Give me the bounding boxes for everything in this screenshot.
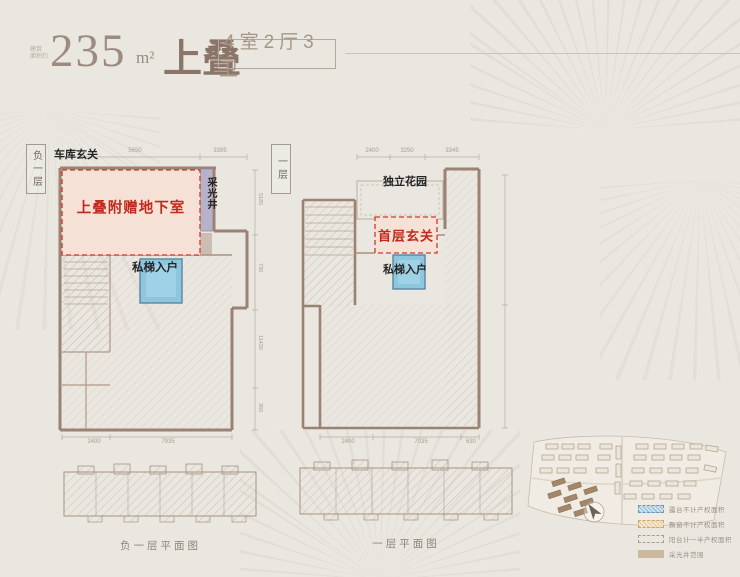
palm-watermark [470, 0, 740, 130]
site-plan: 露台不计产权面积 飘窗不计产权面积 阳台计一半产权面积 采光井范围 [512, 428, 740, 576]
dimension: 11430 [257, 335, 263, 350]
area-unit: m² [136, 48, 154, 68]
first-floor-keyplan: 一层平面图 [296, 452, 516, 558]
entry-label: 首层玄关 [378, 226, 434, 245]
bonus-basement-label: 上叠附赠地下室 [77, 197, 186, 218]
legend-label: 采光井范围 [669, 549, 704, 559]
floorplan-page: 建筑 面积约 235 m² 上叠 4室2厅3卫 负一层 一层 [0, 0, 740, 577]
private-elevator-label: 私梯入户 [383, 261, 427, 277]
dimension: 2400 [365, 148, 378, 154]
palm-watermark [600, 180, 740, 380]
first-floor-plan-caption: 一层平面图 [296, 536, 516, 551]
basement-floor-plan: 车库玄关 上叠附赠地下室 采光井 私梯入户 5650 3395 2400 793… [50, 145, 265, 445]
dimension: 3395 [213, 148, 226, 154]
first-floor-keyplan-drawing [296, 452, 516, 530]
light-well-label: 采光井 [203, 177, 218, 210]
basement-floor-tag: 负一层 [26, 144, 46, 194]
garage-entry-label: 车库玄关 [54, 146, 98, 162]
legend-row: 采光井范围 [638, 549, 732, 559]
baywindow-swatch-icon [638, 520, 664, 528]
legend-label: 飘窗不计产权面积 [669, 519, 725, 529]
basement-plan-drawing [50, 145, 265, 445]
dimension: 7935 [161, 439, 174, 445]
site-legend: 露台不计产权面积 飘窗不计产权面积 阳台计一半产权面积 采光井范围 [638, 504, 732, 564]
dimension: 3250 [400, 148, 413, 154]
dimension: 360 [257, 403, 263, 412]
first-floor-tag: 一层 [271, 144, 291, 194]
basement-plan-caption: 负一层平面图 [58, 538, 263, 553]
layout-badge: 4室2厅3卫 [218, 39, 336, 69]
first-floor-plan: 独立花园 首层玄关 私梯入户 2400 3250 3345 2400 7035 … [295, 145, 515, 445]
balcony-swatch-icon [638, 535, 664, 543]
garden-label: 独立花园 [383, 173, 427, 189]
first-floor-plan-drawing [295, 145, 515, 445]
legend-label: 阳台计一半产权面积 [669, 534, 732, 544]
private-elevator-label: 私梯入户 [132, 259, 178, 275]
dimension: 5185 [257, 193, 263, 205]
legend-row: 露台不计产权面积 [638, 504, 732, 514]
dimension: 2400 [341, 439, 354, 445]
terrace-swatch-icon [638, 505, 664, 513]
dimension: 630 [466, 439, 476, 445]
dimension: 2400 [87, 439, 100, 445]
header-rule [345, 53, 740, 54]
dimension: 730 [257, 263, 263, 272]
dimension: 3345 [445, 148, 458, 154]
area-note-line1: 建筑 [30, 47, 48, 54]
legend-row: 阳台计一半产权面积 [638, 534, 732, 544]
dimension: 5650 [128, 148, 141, 154]
legend-label: 露台不计产权面积 [669, 504, 725, 514]
basement-keyplan: 负一层平面图 [58, 458, 263, 558]
lightwell-swatch-icon [638, 550, 664, 558]
area-note-line2: 面积约 [30, 54, 48, 61]
basement-keyplan-drawing [58, 458, 263, 530]
dimension: 7035 [414, 439, 427, 445]
area-value: 235 [50, 24, 127, 78]
legend-row: 飘窗不计产权面积 [638, 519, 732, 529]
area-note: 建筑 面积约 [30, 47, 48, 61]
